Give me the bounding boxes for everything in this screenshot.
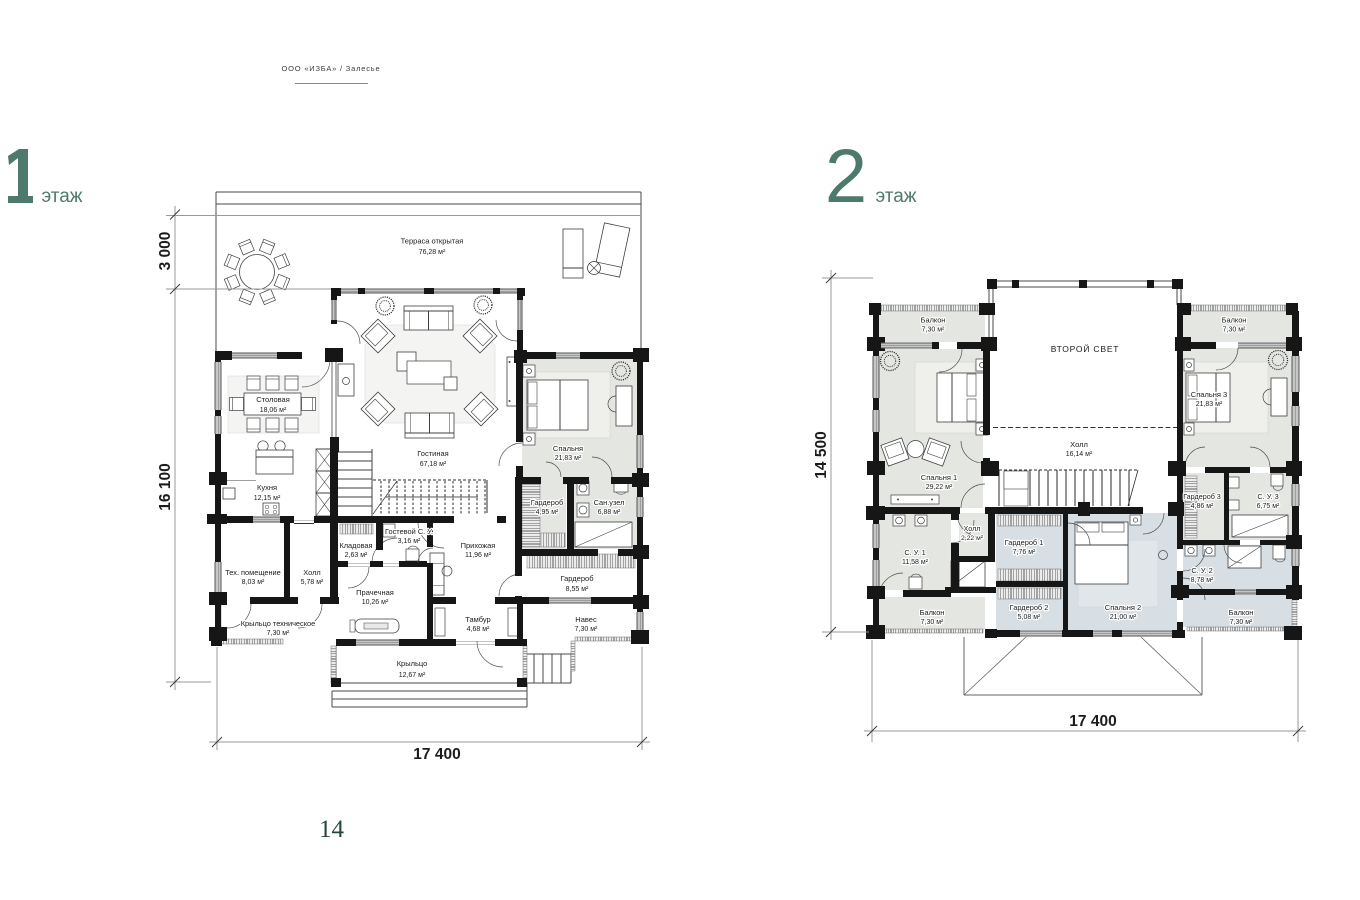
svg-text:5,08 м²: 5,08 м² <box>1018 614 1041 621</box>
svg-text:этаж: этаж <box>875 186 916 207</box>
svg-text:Терраса открытая: Терраса открытая <box>401 237 464 246</box>
svg-text:7,76 м²: 7,76 м² <box>1013 549 1036 556</box>
svg-text:ВТОРОЙ СВЕТ: ВТОРОЙ СВЕТ <box>1051 343 1120 354</box>
svg-text:6,75 м²: 6,75 м² <box>1257 503 1280 510</box>
svg-text:21,83 м²: 21,83 м² <box>555 455 582 462</box>
svg-text:Гостевой С. У.: Гостевой С. У. <box>385 527 433 536</box>
svg-text:8,55 м²: 8,55 м² <box>566 586 589 593</box>
svg-text:7,30 м²: 7,30 м² <box>267 630 290 637</box>
svg-text:16 100: 16 100 <box>157 463 174 510</box>
svg-text:2,22 м²: 2,22 м² <box>961 535 984 542</box>
svg-text:Холл: Холл <box>964 524 981 533</box>
svg-text:С. У. 3: С. У. 3 <box>1257 492 1278 501</box>
svg-text:4,95 м²: 4,95 м² <box>536 509 559 516</box>
svg-text:5,78 м²: 5,78 м² <box>301 579 324 586</box>
svg-text:Тех. помещение: Тех. помещение <box>225 568 281 577</box>
svg-text:6,88 м²: 6,88 м² <box>598 509 621 516</box>
svg-text:67,18 м²: 67,18 м² <box>420 461 447 468</box>
svg-text:Гардероб: Гардероб <box>531 498 564 507</box>
svg-text:Спальня: Спальня <box>553 444 583 453</box>
svg-text:Спальня 2: Спальня 2 <box>1105 603 1141 612</box>
svg-text:16,14 м²: 16,14 м² <box>1066 451 1093 458</box>
svg-text:12,15 м²: 12,15 м² <box>254 495 281 502</box>
svg-text:21,00 м²: 21,00 м² <box>1110 614 1137 621</box>
svg-text:3,16 м²: 3,16 м² <box>398 538 421 545</box>
svg-text:2,63 м²: 2,63 м² <box>345 552 368 559</box>
svg-text:7,30 м²: 7,30 м² <box>1230 619 1253 626</box>
svg-text:14: 14 <box>319 816 345 843</box>
svg-text:8,03 м²: 8,03 м² <box>242 579 265 586</box>
svg-text:Гардероб: Гардероб <box>561 574 594 583</box>
svg-text:Крыльцо: Крыльцо <box>397 659 428 668</box>
svg-text:Балкон: Балкон <box>921 316 946 325</box>
svg-text:4,68 м²: 4,68 м² <box>467 626 490 633</box>
svg-text:7,30 м²: 7,30 м² <box>1223 327 1246 334</box>
svg-text:11,96 м²: 11,96 м² <box>465 552 492 559</box>
svg-text:этаж: этаж <box>41 186 82 207</box>
svg-text:Столовая: Столовая <box>256 395 290 404</box>
svg-text:2: 2 <box>825 134 867 219</box>
svg-text:Навес: Навес <box>575 615 597 624</box>
svg-text:29,22 м²: 29,22 м² <box>926 484 953 491</box>
svg-text:21,83 м²: 21,83 м² <box>1196 401 1223 408</box>
svg-text:Спальня 1: Спальня 1 <box>921 473 957 482</box>
svg-text:Тамбур: Тамбур <box>465 615 490 624</box>
svg-text:Прихожая: Прихожая <box>461 541 496 550</box>
svg-text:10,26 м²: 10,26 м² <box>362 599 389 606</box>
svg-text:14 500: 14 500 <box>813 431 830 478</box>
svg-text:4,86 м²: 4,86 м² <box>1191 503 1214 510</box>
svg-text:Балкон: Балкон <box>1222 316 1247 325</box>
svg-text:Сан.узел: Сан.узел <box>594 498 625 507</box>
svg-text:Прачечная: Прачечная <box>356 588 394 597</box>
svg-text:С. У. 1: С. У. 1 <box>904 548 925 557</box>
svg-text:8,78 м²: 8,78 м² <box>1191 577 1214 584</box>
svg-text:Спальня 3: Спальня 3 <box>1191 390 1227 399</box>
svg-text:17 400: 17 400 <box>413 746 460 763</box>
svg-text:Гардероб 1: Гардероб 1 <box>1005 538 1044 547</box>
svg-text:7,30 м²: 7,30 м² <box>921 619 944 626</box>
svg-text:ООО «ИЗБА» / Залесье: ООО «ИЗБА» / Залесье <box>282 64 381 73</box>
svg-text:С. У. 2: С. У. 2 <box>1191 566 1212 575</box>
svg-text:Холл: Холл <box>1070 440 1088 449</box>
svg-text:7,30 м²: 7,30 м² <box>575 626 598 633</box>
svg-text:7,30 м²: 7,30 м² <box>922 327 945 334</box>
svg-text:Балкон: Балкон <box>920 608 945 617</box>
svg-text:Холл: Холл <box>303 568 320 577</box>
svg-text:Кладовая: Кладовая <box>339 541 372 550</box>
svg-text:12,67 м²: 12,67 м² <box>399 672 426 679</box>
svg-text:17 400: 17 400 <box>1069 713 1116 730</box>
svg-text:Гостиная: Гостиная <box>417 449 448 458</box>
svg-text:3 000: 3 000 <box>157 232 174 271</box>
svg-text:Балкон: Балкон <box>1229 608 1254 617</box>
svg-text:Гардероб 3: Гардероб 3 <box>1183 492 1221 501</box>
svg-text:11,58 м²: 11,58 м² <box>902 559 929 566</box>
svg-text:76,28 м²: 76,28 м² <box>419 249 446 256</box>
svg-text:Крыльцо техническое: Крыльцо техническое <box>241 619 316 628</box>
svg-text:Кухня: Кухня <box>257 483 277 492</box>
svg-text:Гардероб 2: Гардероб 2 <box>1010 603 1049 612</box>
svg-text:18,06 м²: 18,06 м² <box>260 407 287 414</box>
